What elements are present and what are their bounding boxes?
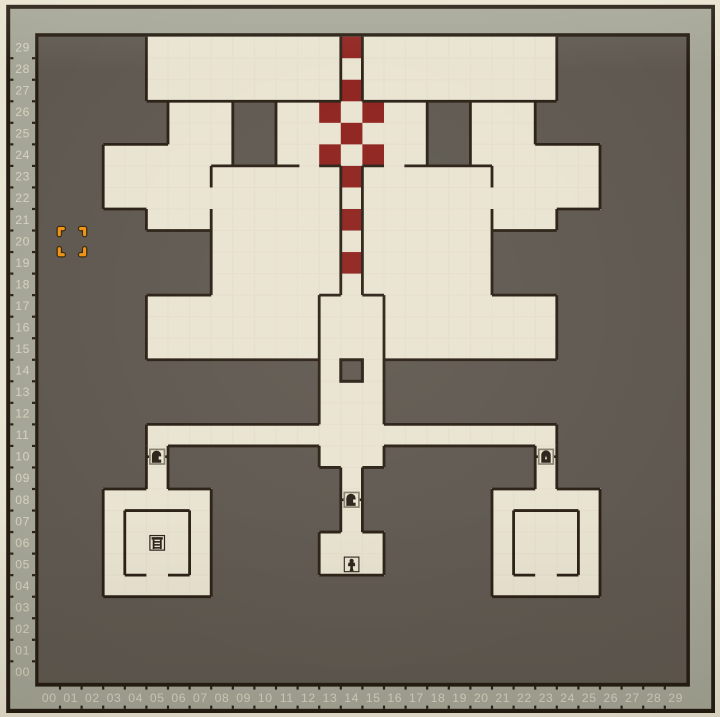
svg-text:21: 21: [495, 691, 510, 705]
svg-text:02: 02: [15, 622, 30, 636]
svg-text:23: 23: [539, 691, 554, 705]
svg-text:25: 25: [582, 691, 597, 705]
svg-text:09: 09: [236, 691, 251, 705]
svg-text:27: 27: [15, 84, 30, 98]
svg-text:00: 00: [15, 665, 30, 679]
svg-text:21: 21: [15, 213, 30, 227]
svg-text:07: 07: [15, 514, 30, 528]
svg-text:05: 05: [150, 691, 165, 705]
svg-text:01: 01: [15, 644, 30, 658]
svg-text:13: 13: [15, 385, 30, 399]
svg-text:09: 09: [15, 471, 30, 485]
svg-text:10: 10: [258, 691, 273, 705]
svg-text:19: 19: [452, 691, 467, 705]
svg-text:18: 18: [431, 691, 446, 705]
svg-text:17: 17: [15, 299, 30, 313]
svg-text:26: 26: [603, 691, 618, 705]
svg-text:01: 01: [63, 691, 78, 705]
svg-text:26: 26: [15, 105, 30, 119]
svg-text:05: 05: [15, 557, 30, 571]
svg-text:11: 11: [16, 428, 30, 442]
svg-text:12: 12: [15, 407, 30, 421]
svg-text:28: 28: [15, 62, 30, 76]
svg-text:19: 19: [15, 256, 30, 270]
svg-text:16: 16: [387, 691, 402, 705]
svg-text:24: 24: [15, 148, 30, 162]
svg-text:15: 15: [15, 342, 30, 356]
svg-text:00: 00: [42, 691, 57, 705]
svg-text:23: 23: [15, 170, 30, 184]
svg-text:11: 11: [280, 691, 294, 705]
svg-text:22: 22: [15, 191, 30, 205]
svg-text:14: 14: [15, 364, 30, 378]
svg-text:07: 07: [193, 691, 208, 705]
svg-text:14: 14: [344, 691, 359, 705]
svg-text:08: 08: [215, 691, 230, 705]
svg-text:04: 04: [15, 579, 30, 593]
svg-text:27: 27: [625, 691, 640, 705]
svg-text:02: 02: [85, 691, 100, 705]
svg-text:10: 10: [15, 450, 30, 464]
svg-text:17: 17: [409, 691, 424, 705]
svg-text:20: 20: [474, 691, 489, 705]
svg-text:25: 25: [15, 127, 30, 141]
svg-text:06: 06: [15, 536, 30, 550]
svg-text:24: 24: [560, 691, 575, 705]
svg-text:15: 15: [366, 691, 381, 705]
svg-text:06: 06: [171, 691, 186, 705]
svg-text:12: 12: [301, 691, 316, 705]
svg-text:18: 18: [15, 277, 30, 291]
svg-text:20: 20: [15, 234, 30, 248]
svg-text:22: 22: [517, 691, 532, 705]
svg-text:28: 28: [647, 691, 662, 705]
svg-text:08: 08: [15, 493, 30, 507]
svg-text:03: 03: [15, 600, 30, 614]
svg-text:16: 16: [15, 320, 30, 334]
svg-text:04: 04: [128, 691, 143, 705]
svg-text:29: 29: [15, 40, 30, 54]
svg-text:29: 29: [668, 691, 683, 705]
svg-text:03: 03: [107, 691, 122, 705]
svg-text:13: 13: [323, 691, 338, 705]
